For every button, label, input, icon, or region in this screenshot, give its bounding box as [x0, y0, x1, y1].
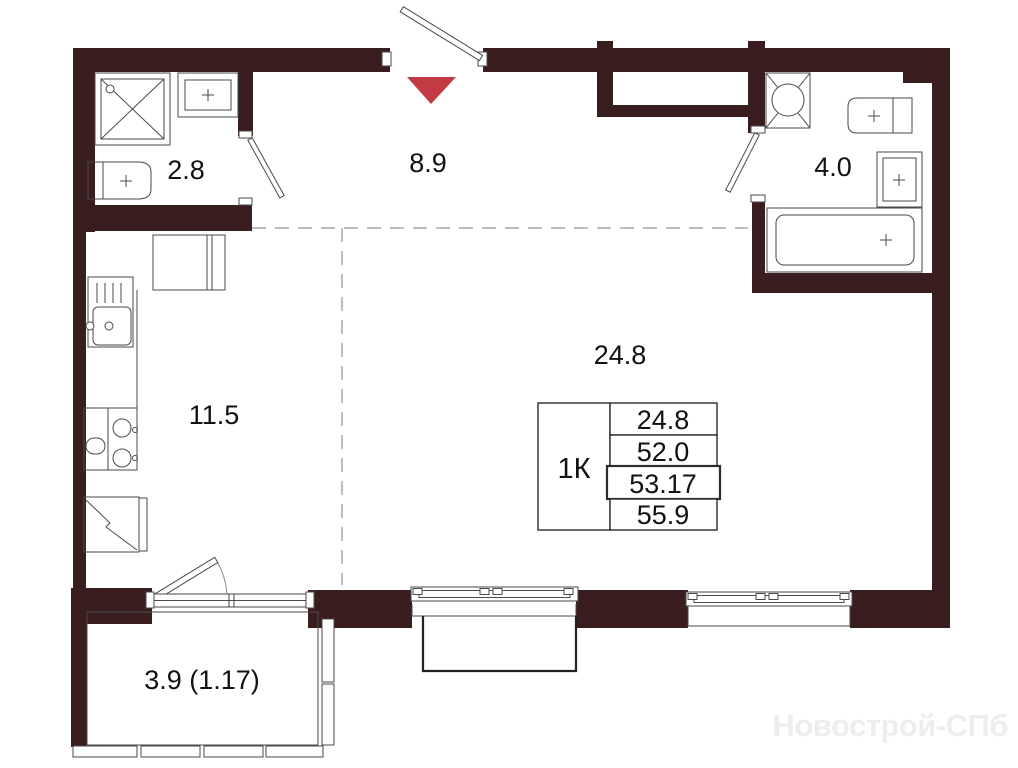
- balcony-window-band: [146, 592, 314, 608]
- window-hardware: [480, 589, 489, 595]
- bathroom-door-jamb-bottom: [751, 195, 765, 202]
- walls: [71, 41, 950, 747]
- washbasin: [877, 152, 922, 207]
- bathroom-small-door: [239, 131, 284, 205]
- floor-plan-page: 2.8 8.9 4.0 11.5 24.8 3.9 (1.17) 1К 24.8…: [0, 0, 1018, 768]
- wall-bottom-center: [576, 590, 688, 628]
- entrance-door-jamb-left: [382, 52, 391, 66]
- kitchen-fixtures: [84, 235, 225, 552]
- shower-cabin: [95, 73, 170, 145]
- info-table-value: 55.9: [637, 500, 690, 530]
- window-hardware: [413, 589, 422, 595]
- bathroom-door-jamb-top: [751, 126, 765, 133]
- watermark: Новострой-СПб: [773, 708, 1009, 743]
- washbasin-small: [178, 73, 238, 117]
- wall-bathroom-small-bottom: [73, 205, 252, 231]
- burner: [113, 419, 131, 437]
- bathtub: [767, 208, 922, 272]
- window-hardware: [564, 589, 573, 595]
- room-label-bathroom: 4.0: [814, 152, 852, 182]
- wall-left-upper: [73, 48, 95, 232]
- kitchen-sink: [86, 277, 133, 347]
- windows: [146, 587, 852, 671]
- faucet-icon: [86, 322, 94, 330]
- fridge: [153, 235, 225, 290]
- window-hardware: [688, 594, 697, 600]
- wall-right: [932, 48, 950, 628]
- bathroom-door-leaf: [726, 133, 760, 192]
- stove: [84, 408, 138, 470]
- entrance-arrow-icon: [407, 77, 456, 104]
- wall-top-left: [73, 48, 390, 72]
- bathroom-small-door-leaf: [248, 138, 284, 198]
- corner-cabinet: [84, 497, 147, 552]
- french-balcony-outline: [423, 616, 576, 671]
- window-hardware: [756, 594, 765, 600]
- wall-niche-bottom: [597, 105, 765, 117]
- bathroom-small-door-jamb-bottom: [239, 198, 252, 205]
- burner: [113, 449, 131, 467]
- plus-mark: [202, 89, 214, 101]
- oven-handle: [86, 438, 105, 454]
- wall-bottom-left-block: [73, 588, 152, 624]
- room-label-living-room: 24.8: [594, 340, 647, 370]
- info-table-unit-label: 1К: [557, 453, 590, 485]
- info-table-value: 24.8: [637, 405, 690, 435]
- plus-mark: [880, 234, 892, 246]
- wall-axis-tick-1: [597, 41, 613, 48]
- floor-plan-canvas: 2.8 8.9 4.0 11.5 24.8 3.9 (1.17) 1К 24.8…: [0, 0, 1018, 768]
- info-table: 1К 24.8 52.0 53.17 55.9: [538, 403, 720, 530]
- info-table-value: 52.0: [637, 437, 690, 467]
- window-hardware: [769, 594, 778, 600]
- balcony-band-jamb-left: [146, 592, 154, 608]
- wall-top-right: [483, 48, 950, 72]
- room-label-hallway: 8.9: [409, 148, 447, 178]
- shower-drain-icon: [106, 85, 114, 93]
- right-window: [686, 592, 852, 626]
- window-hardware: [840, 594, 849, 600]
- room-label-bathroom-small: 2.8: [167, 155, 205, 185]
- wall-bathroom-small-door-stub: [238, 72, 253, 136]
- room-label-balcony: 3.9 (1.17): [144, 665, 260, 695]
- wall-niche-right: [748, 48, 765, 133]
- washing-machine: [766, 73, 810, 128]
- plus-mark: [893, 174, 905, 186]
- wall-bathroom-bottom: [752, 273, 950, 293]
- room-label-kitchen: 11.5: [189, 400, 240, 430]
- center-window: [411, 587, 578, 671]
- entrance-door-leaf: [400, 7, 482, 61]
- plus-mark: [120, 175, 132, 187]
- bathroom-cabinet: [848, 98, 912, 133]
- info-table-value: 53.17: [629, 469, 697, 499]
- bathroom-door: [726, 126, 765, 202]
- entrance-door: [382, 7, 487, 66]
- bathroom-small-fixtures: [88, 73, 238, 199]
- window-hardware: [493, 589, 502, 595]
- wall-axis-tick-2: [748, 41, 765, 48]
- balcony-door-swing-arc: [216, 560, 227, 596]
- bathroom-small-door-jamb-top: [239, 131, 252, 138]
- toilet: [88, 162, 151, 199]
- balcony-band-jamb-right: [306, 592, 314, 608]
- plus-mark: [868, 110, 880, 122]
- drainer-lines: [97, 283, 121, 303]
